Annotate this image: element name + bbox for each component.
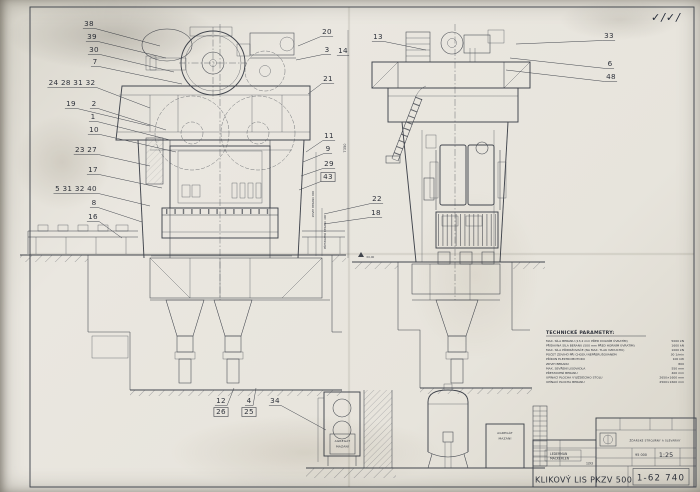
callout-19: 19: [66, 99, 76, 108]
callout-25: 25: [244, 407, 254, 416]
tech-params-block: TECHNICKÉ PARAMETRY: MAX. SÍLA BERANU (1…: [546, 328, 684, 384]
callout-12: 12: [216, 396, 226, 405]
agregat-label-line2: MAZÁNÍ: [336, 444, 349, 449]
tech-param-label: PŘESTAVENÍ BERANU: [546, 370, 578, 375]
callout-leader: [306, 141, 323, 153]
drawing-frame: [30, 7, 694, 487]
dim-overall-height: 7350: [343, 143, 347, 153]
callout-leader: [99, 194, 151, 207]
drive-assembly: [142, 27, 296, 99]
date-value: 1/93: [586, 462, 593, 466]
callout-20: 20: [322, 27, 332, 36]
callout-1: 1: [91, 112, 96, 121]
weight-value: 95 000: [635, 453, 647, 457]
callout-leader: [99, 67, 182, 85]
ground-level-label: ±0,00: [366, 255, 375, 259]
tech-param-label: POČET ZDVIHŮ PŘI CHODU NEPŘERUŠOVANÉM: [546, 352, 617, 357]
callout-3: 3: [325, 45, 330, 54]
callout-34: 34: [270, 396, 280, 405]
drawing-sheet: AGREGÁT MAZÁNÍ: [0, 0, 700, 492]
callout-leader: [98, 155, 150, 167]
bottom-equipment: AGREGÁT MAZÁNÍ: [306, 384, 545, 478]
ground-line-side: [352, 262, 545, 269]
callout-22: 22: [372, 194, 382, 203]
tech-param-value: 2500×1600 mm: [659, 380, 684, 384]
callout-16: 16: [88, 212, 98, 221]
callout-leader: [98, 208, 142, 223]
hopper-side: [436, 300, 478, 336]
callout-leader: [510, 58, 606, 69]
side-ram: [424, 145, 506, 210]
callout-26: 26: [216, 407, 226, 416]
title-block: ŽĎÁRSKÉ STROJÍRNY A SLÉVÁRNY 95 000 1:25…: [533, 418, 696, 487]
drawing-title: KLIKOVÝ LIS PKZV 500: [535, 474, 632, 485]
callout-18: 18: [371, 208, 381, 217]
callout-leader: [516, 41, 603, 45]
callout-leader: [97, 122, 170, 141]
callout-5-31-32-40: 5 31 32 40: [55, 184, 97, 193]
callout-leader: [97, 88, 150, 109]
tech-param-value: 2650×1600 mm: [659, 375, 684, 379]
callout-14: 14: [338, 46, 348, 55]
callout-33: 33: [604, 31, 614, 40]
agregat-box-2: AGREGÁT MAZÁNÍ: [486, 424, 524, 468]
callout-38: 38: [84, 19, 94, 28]
callout-leader: [98, 42, 166, 59]
main-motor: [250, 33, 294, 55]
tech-param-value: 5000 kN: [671, 339, 684, 343]
gear-icon: [245, 51, 285, 91]
tech-params-heading: TECHNICKÉ PARAMETRY:: [546, 328, 615, 336]
left-bench: [28, 225, 138, 254]
checker-name: MACKERLEN: [550, 457, 570, 461]
callout-11: 11: [324, 131, 334, 140]
tech-param-label: MAX. SÍLA PŘIDRŽOVAČE (NA MAX. TLAK VZDU…: [546, 347, 624, 352]
callout-17: 17: [88, 165, 98, 174]
tech-param-label: MAX. SÍLA BERANU (13,2 mm PŘED DOLNÍM ÚV…: [546, 338, 628, 343]
air-tank: [428, 384, 468, 468]
callout-8: 8: [92, 198, 97, 207]
agregat-label-line1: AGREGÁT: [497, 430, 513, 435]
die-cushion: [436, 212, 498, 264]
callout-leader: [301, 169, 323, 177]
lower-ground: [306, 468, 545, 478]
callout-layer: 383930724 28 31 3219211023 27175 31 32 4…: [47, 19, 617, 430]
callout-4: 4: [247, 396, 252, 405]
callout-leader: [98, 109, 166, 131]
callout-24-28-31-32: 24 28 31 32: [49, 78, 96, 87]
blueprint-svg: AGREGÁT MAZÁNÍ: [0, 0, 700, 492]
tech-params-rows: MAX. SÍLA BERANU (13,2 mm PŘED DOLNÍM ÚV…: [546, 338, 684, 384]
tech-param-value: 400 mm: [671, 371, 684, 375]
callout-43: 43: [323, 172, 333, 181]
callout-13: 13: [373, 32, 383, 41]
side-view: [352, 24, 545, 394]
tech-param-value: 1000 kN: [671, 348, 684, 352]
foundation-front: [88, 255, 342, 396]
callout-leader: [296, 55, 323, 61]
tech-param-label: PŘÍDAVNÁ SÍLA BERANU (500 mm PŘED HORNÍM…: [546, 343, 635, 348]
hopper-right: [214, 300, 252, 336]
tech-param-label: MAX. SEVŘENÍ LISOVADLA: [546, 365, 586, 370]
callout-leader: [303, 154, 324, 163]
callout-39: 39: [87, 32, 97, 41]
tech-param-value: 550 mm: [671, 366, 684, 370]
dimensions: 7350 ZDVIH BERANU 800 PŘESTAVENÍ BERANU …: [311, 30, 375, 259]
designer-name: LEDERMAN: [550, 452, 568, 456]
tech-param-value: 1600 kN: [671, 344, 684, 348]
tech-param-label: UPÍNACÍ PLOCHA BERANU: [546, 379, 585, 384]
callout-leader: [384, 42, 426, 51]
company-name: ŽĎÁRSKÉ STROJÍRNY A SLÉVÁRNY: [629, 438, 680, 443]
callout-6: 6: [608, 59, 613, 68]
callout-10: 10: [89, 125, 99, 134]
callout-2: 2: [92, 99, 97, 108]
dim-stroke: ZDVIH BERANU 800: [311, 190, 315, 217]
tech-param-label: UPÍNACÍ PLOCHA VYJÍŽDĚCÍHO STOLU: [546, 374, 602, 379]
tech-param-label: ZDVIH BERANU: [546, 362, 569, 366]
control-cabinet: [146, 138, 163, 184]
ladder: [386, 86, 426, 163]
tech-param-value: 800: [678, 362, 684, 366]
hopper-left: [166, 300, 204, 336]
hatched-wall: [364, 390, 392, 468]
scale-value: 1:25: [659, 451, 673, 459]
callout-21: 21: [323, 74, 333, 83]
callout-48: 48: [606, 72, 616, 81]
callout-leader: [298, 37, 321, 47]
approval-checkmarks: ✓/✓/: [651, 11, 681, 24]
callout-leader: [99, 222, 122, 239]
tech-param-label: PŘÍKON ELEKTROMOTORU: [546, 356, 585, 361]
tech-param-value: 100 kW: [673, 357, 684, 361]
agregat-label-line2: MAZÁNÍ: [498, 436, 511, 441]
callout-30: 30: [89, 45, 99, 54]
dim-adjust: PŘESTAVENÍ BERANU 400: [322, 215, 327, 250]
belt-guard: [142, 29, 192, 61]
callout-23-27: 23 27: [75, 145, 97, 154]
callout-29: 29: [324, 159, 334, 168]
callout-leader: [77, 109, 150, 127]
callout-leader: [281, 406, 326, 431]
agregat-label-line1: AGREGÁT: [335, 438, 351, 443]
side-crown: [372, 62, 530, 122]
callout-leader: [324, 218, 370, 225]
motor-end: [441, 32, 463, 54]
drawing-number: 1-62 740: [637, 474, 685, 484]
callout-7: 7: [93, 57, 98, 66]
callout-leader: [506, 70, 605, 82]
callout-leader: [324, 204, 371, 215]
callout-9: 9: [326, 144, 331, 153]
tech-param-value: 30 1/min: [671, 353, 684, 357]
foundation-side: [398, 262, 532, 394]
